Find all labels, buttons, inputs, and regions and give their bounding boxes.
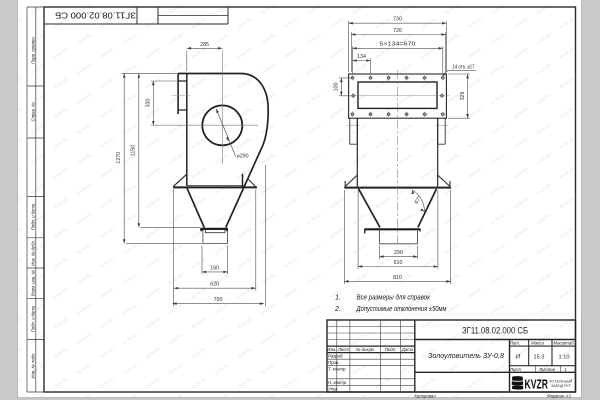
svg-text:Масса: Масса [531, 340, 544, 345]
svg-text:Копировал: Копировал [414, 393, 436, 398]
svg-text:Инв. № дубл.: Инв. № дубл. [30, 240, 35, 266]
svg-text:Пров.: Пров. [328, 360, 339, 365]
svg-text:Формат А3: Формат А3 [547, 393, 571, 398]
svg-text:1150: 1150 [131, 145, 137, 156]
svg-text:№ докум.: № докум. [356, 347, 375, 352]
svg-text:Взам. инв. №: Взам. инв. № [30, 270, 35, 296]
svg-text:Лист: Лист [509, 367, 521, 372]
svg-text:14 отв. ⌀17: 14 отв. ⌀17 [453, 65, 475, 71]
svg-text:700: 700 [214, 297, 223, 303]
svg-text:Все размеры для справок: Все размеры для справок [357, 294, 431, 302]
svg-text:810: 810 [393, 275, 402, 281]
svg-text:1.: 1. [335, 295, 341, 302]
svg-text:Допустимые отклонения ±50мм: Допустимые отклонения ±50мм [356, 306, 447, 313]
svg-text:285: 285 [200, 42, 209, 48]
svg-text:290: 290 [394, 250, 403, 256]
svg-text:Золоуловитель ЗУ-0,8: Золоуловитель ЗУ-0,8 [428, 351, 505, 360]
svg-text:15.3: 15.3 [534, 354, 545, 360]
svg-text:Утв.: Утв. [328, 386, 338, 391]
svg-text:730: 730 [393, 17, 402, 23]
svg-text:Дата: Дата [401, 347, 414, 352]
svg-text:Т. контр.: Т. контр. [328, 367, 347, 372]
svg-text:Подп. и дата: Подп. и дата [30, 203, 35, 230]
svg-text:5×134=670: 5×134=670 [380, 42, 416, 48]
svg-text:620: 620 [210, 282, 219, 288]
svg-text:Перв. примен.: Перв. примен. [30, 36, 35, 64]
svg-text:160: 160 [210, 265, 219, 271]
svg-text:726: 726 [393, 28, 402, 34]
svg-text:Инв. № подл.: Инв. № подл. [30, 353, 35, 379]
svg-text:330: 330 [145, 99, 151, 108]
svg-text:ЗАВОД РУТ: ЗАВОД РУТ [551, 384, 572, 388]
svg-text:100: 100 [333, 83, 339, 92]
svg-text:134: 134 [357, 54, 366, 60]
svg-text:Разраб.: Разраб. [328, 354, 344, 359]
svg-text:1:10: 1:10 [559, 354, 570, 360]
svg-text:Подп.: Подп. [385, 347, 396, 352]
svg-text:Подп. и дата: Подп. и дата [30, 305, 35, 332]
svg-text:Н. контр.: Н. контр. [328, 380, 347, 385]
svg-text:Листов: Листов [538, 367, 555, 372]
svg-text:Масштаб: Масштаб [553, 340, 574, 345]
svg-text:KVZR: KVZR [525, 376, 549, 391]
svg-text:Изм.: Изм. [327, 347, 336, 352]
svg-text:1270: 1270 [116, 152, 122, 164]
svg-text:И: И [516, 354, 521, 360]
svg-text:610: 610 [394, 260, 403, 266]
svg-text:Справ. №: Справ. № [30, 102, 35, 121]
svg-text:КОТЕЛЬНЫЙ: КОТЕЛЬНЫЙ [549, 379, 572, 383]
svg-text:⌀290: ⌀290 [237, 154, 249, 160]
svg-text:Лист: Лист [337, 347, 349, 352]
svg-text:ЗГ11.08.02.000 СБ: ЗГ11.08.02.000 СБ [55, 10, 136, 20]
svg-text:Лит.: Лит. [509, 340, 520, 345]
svg-text:ЗГ11.08.02.000 СБ: ЗГ11.08.02.000 СБ [462, 325, 528, 336]
svg-text:2.: 2. [334, 306, 341, 313]
svg-text:326: 326 [460, 92, 466, 101]
